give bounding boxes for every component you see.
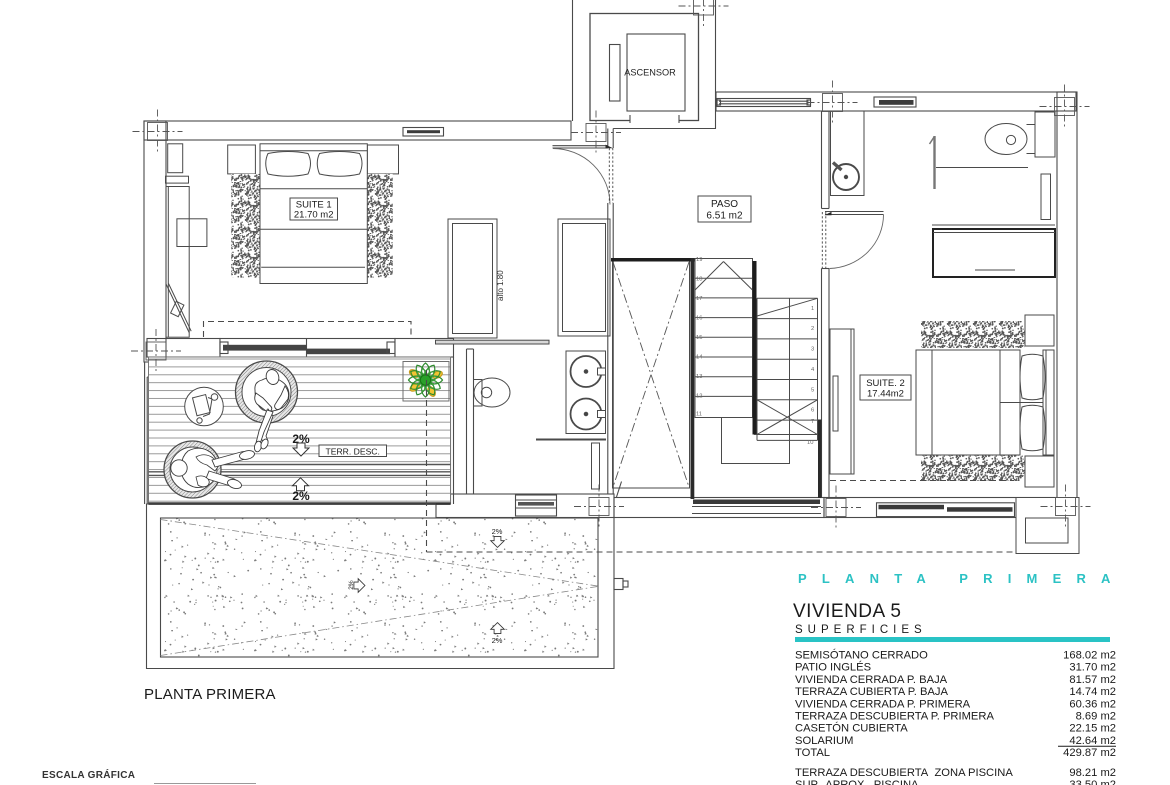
svg-text:5: 5 (811, 388, 814, 394)
svg-text:14: 14 (696, 355, 703, 361)
svg-text:11: 11 (696, 412, 702, 418)
svg-text:PLANTA PRIMERA: PLANTA PRIMERA (798, 571, 1126, 586)
svg-text:2: 2 (811, 326, 814, 332)
svg-text:15: 15 (696, 335, 702, 341)
svg-text:TERRAZA DESCUBIERTA P. PRIMERA: TERRAZA DESCUBIERTA P. PRIMERA (795, 711, 994, 723)
svg-text:10: 10 (807, 440, 813, 446)
svg-text:22.15 m2: 22.15 m2 (1069, 723, 1116, 735)
svg-text:alto 1.80: alto 1.80 (496, 270, 505, 301)
svg-text:60.36 m2: 60.36 m2 (1069, 698, 1116, 710)
svg-text:33.50 m2: 33.50 m2 (1069, 779, 1116, 785)
svg-text:3: 3 (811, 347, 814, 353)
svg-text:2%: 2% (348, 580, 355, 590)
svg-text:TERRAZA CUBIERTA P. BAJA: TERRAZA CUBIERTA P. BAJA (795, 686, 948, 698)
svg-text:17.44m2: 17.44m2 (867, 389, 904, 400)
svg-text:13: 13 (696, 374, 702, 380)
svg-text:SUP. APROX. PISCINA: SUP. APROX. PISCINA (795, 779, 919, 785)
svg-text:VIVIENDA CERRADA P. BAJA: VIVIENDA CERRADA P. BAJA (795, 674, 948, 686)
svg-text:42.64 m2: 42.64 m2 (1069, 735, 1116, 747)
svg-text:31.70 m2: 31.70 m2 (1069, 662, 1116, 674)
svg-text:CASETÓN CUBIERTA: CASETÓN CUBIERTA (795, 722, 908, 735)
svg-text:12: 12 (696, 394, 702, 400)
svg-text:SEMISÓTANO CERRADO: SEMISÓTANO CERRADO (795, 649, 928, 662)
svg-text:TERRAZA DESCUBIERTA ZONA PISC: TERRAZA DESCUBIERTA ZONA PISCINA (795, 767, 1013, 779)
svg-text:TOTAL: TOTAL (795, 747, 830, 759)
svg-text:14.74 m2: 14.74 m2 (1069, 686, 1116, 698)
svg-text:SUPERFICIES: SUPERFICIES (795, 624, 927, 636)
svg-text:7: 7 (811, 419, 814, 425)
svg-text:6: 6 (811, 408, 814, 414)
svg-text:SOLARIUM: SOLARIUM (795, 735, 853, 747)
svg-text:PATIO INGLÉS: PATIO INGLÉS (795, 661, 871, 674)
svg-text:VIVIENDA CERRADA P. PRIMERA: VIVIENDA CERRADA P. PRIMERA (795, 698, 971, 710)
svg-text:81.57 m2: 81.57 m2 (1069, 674, 1116, 686)
svg-text:98.21 m2: 98.21 m2 (1069, 767, 1116, 779)
svg-text:VIVIENDA 5: VIVIENDA 5 (793, 601, 902, 622)
svg-text:ESCALA GRÁFICA: ESCALA GRÁFICA (42, 768, 135, 781)
svg-text:TERR. DESC.: TERR. DESC. (325, 446, 379, 456)
svg-text:16: 16 (696, 316, 702, 322)
svg-text:2%: 2% (492, 527, 503, 536)
svg-text:2%: 2% (292, 489, 310, 503)
svg-text:2%: 2% (492, 636, 503, 645)
svg-text:PASO: PASO (711, 199, 738, 210)
svg-text:18: 18 (696, 277, 702, 283)
svg-text:SUITE. 2: SUITE. 2 (866, 378, 905, 389)
svg-text:ASCENSOR: ASCENSOR (624, 68, 676, 78)
svg-text:168.02 m2: 168.02 m2 (1063, 650, 1116, 662)
svg-text:8.69 m2: 8.69 m2 (1076, 711, 1116, 723)
svg-text:429.87 m2: 429.87 m2 (1063, 747, 1116, 759)
svg-text:PLANTA PRIMERA: PLANTA PRIMERA (144, 686, 276, 703)
svg-text:1: 1 (811, 306, 814, 312)
svg-text:17: 17 (696, 296, 702, 302)
svg-text:6.51 m2: 6.51 m2 (706, 211, 743, 222)
svg-text:21.70 m2: 21.70 m2 (294, 210, 334, 221)
svg-text:19: 19 (696, 257, 702, 263)
